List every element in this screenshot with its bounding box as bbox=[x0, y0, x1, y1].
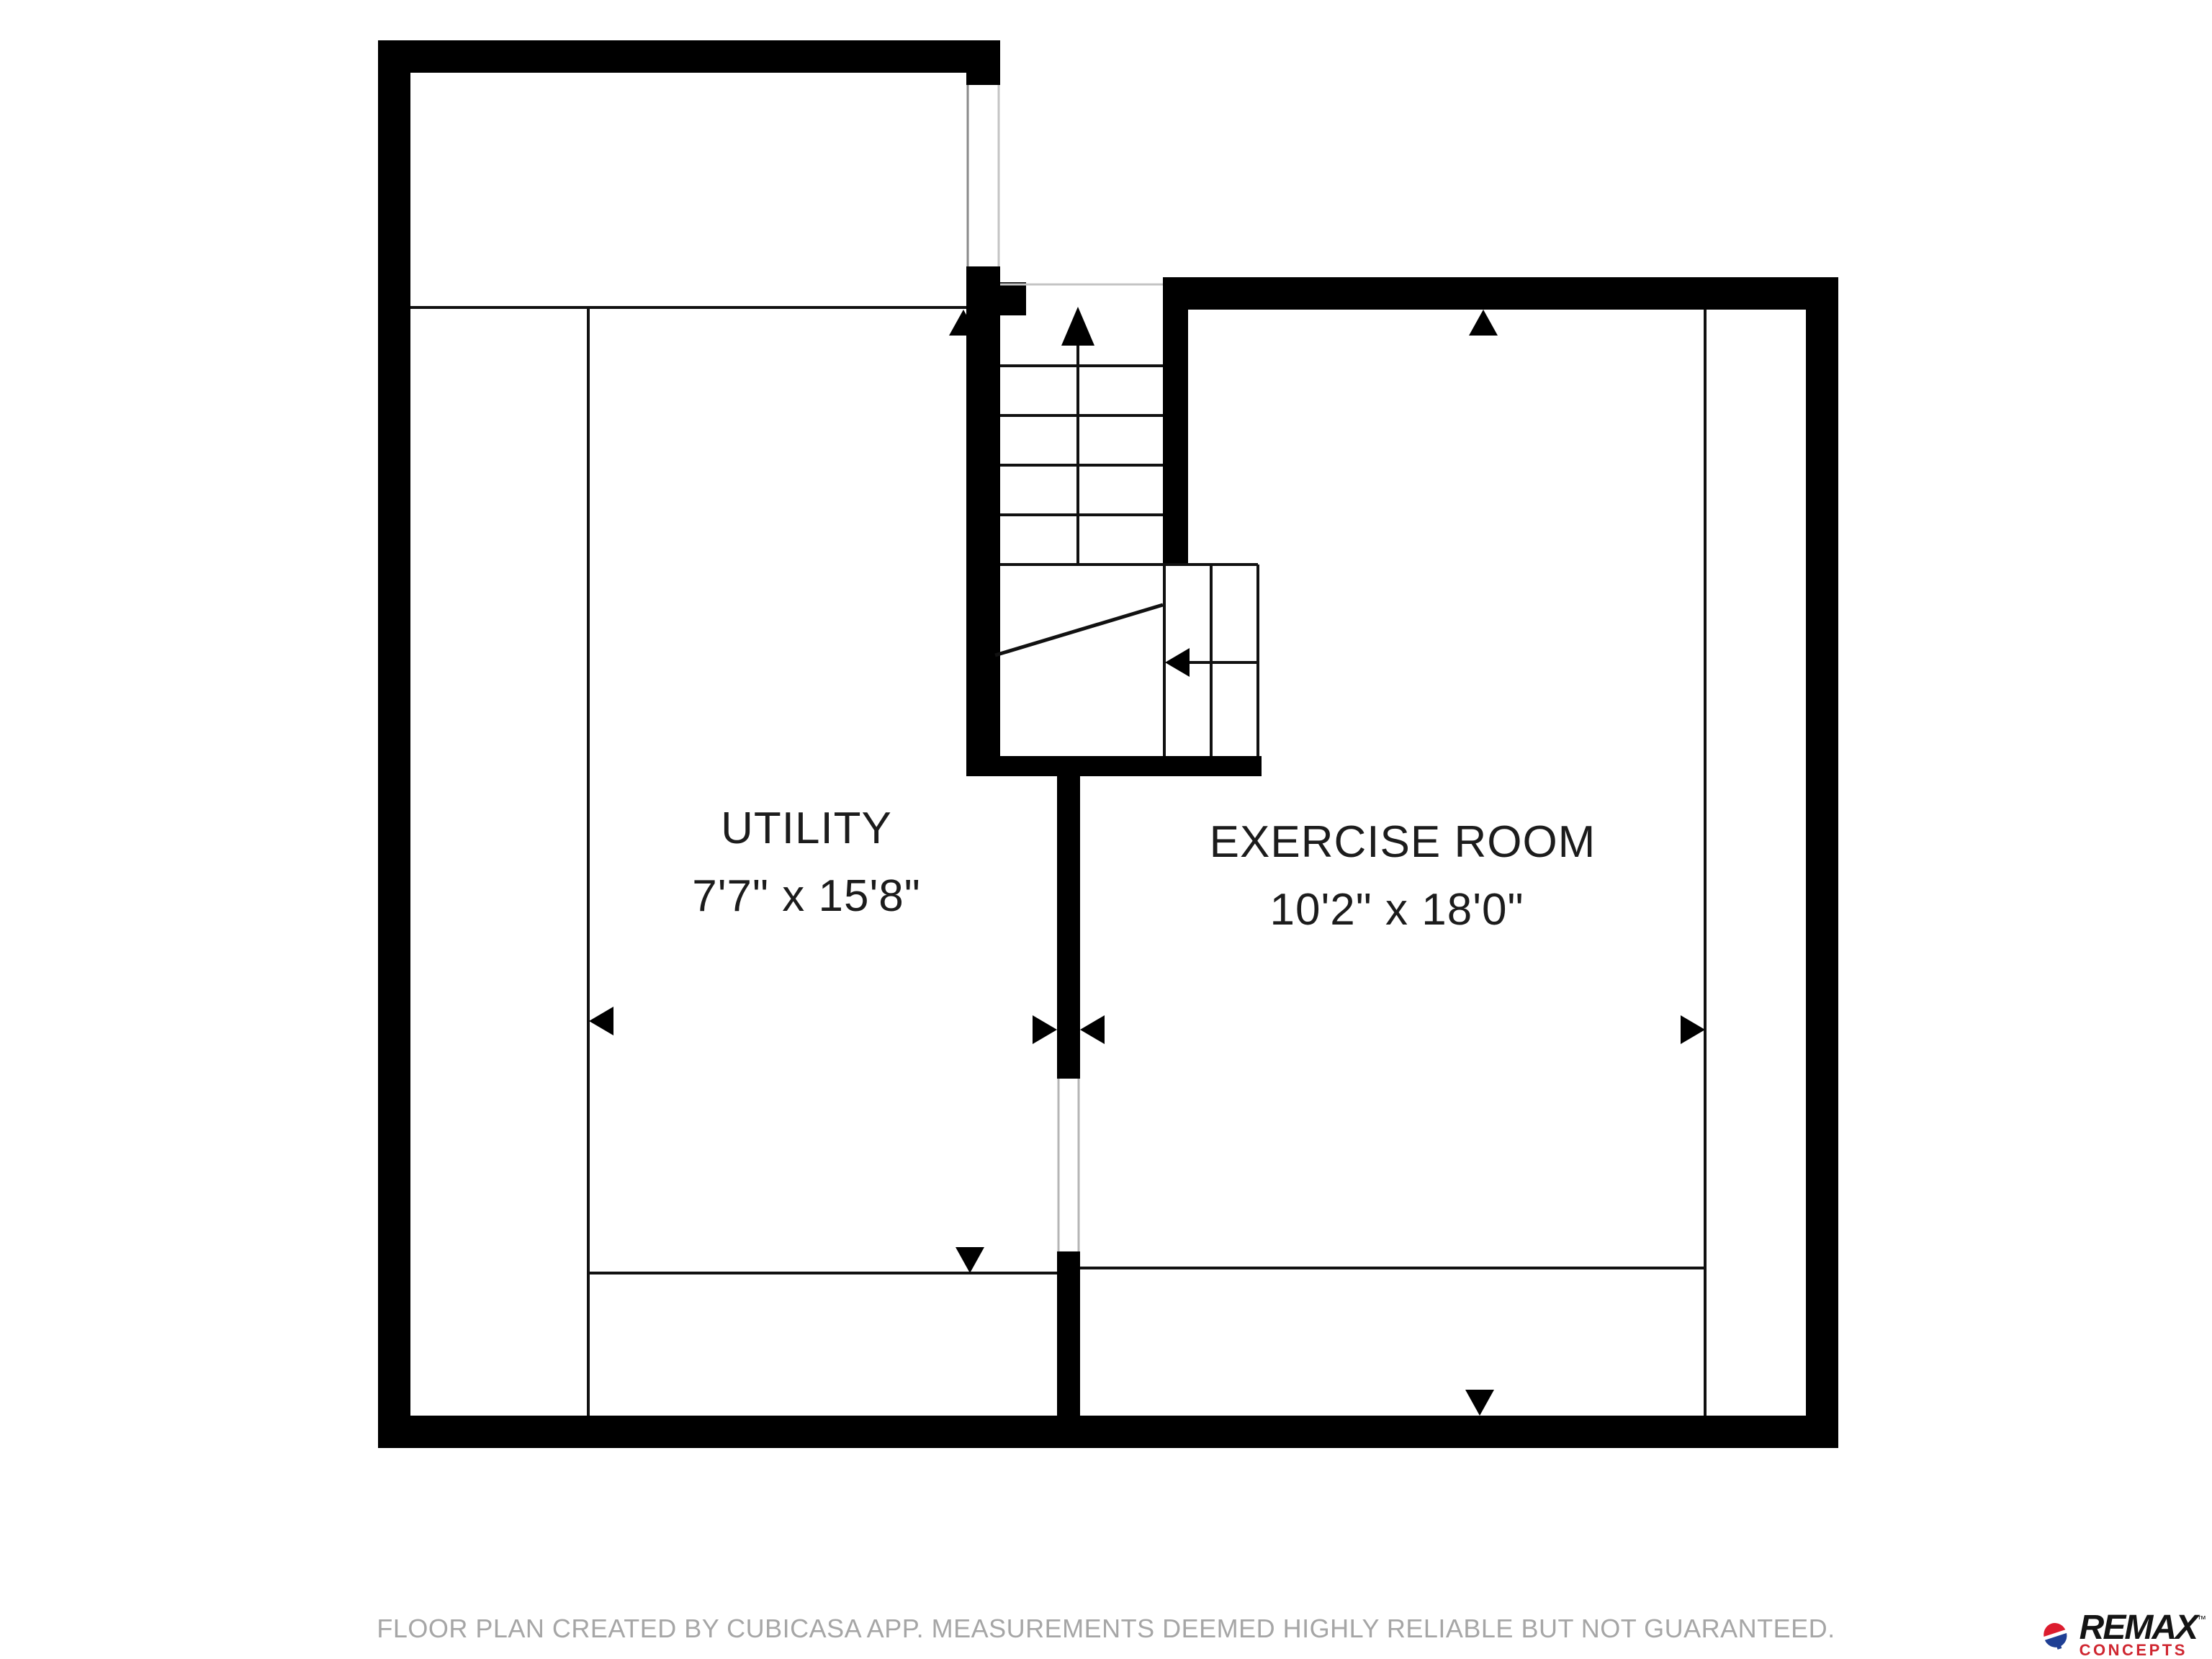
exterior-walls bbox=[378, 40, 1838, 1448]
logo-trademark: ™ bbox=[2197, 1614, 2206, 1624]
room-labels: UTILITY 7'7" x 15'8" EXERCISE ROOM 10'2"… bbox=[692, 804, 1596, 935]
wall-top bbox=[378, 40, 1000, 73]
window-opening bbox=[968, 85, 999, 266]
room-dims-exercise: 10'2" x 18'0" bbox=[1269, 885, 1524, 935]
remax-balloon-icon bbox=[2035, 1616, 2077, 1656]
utility-measure-right-arrow-icon bbox=[1033, 1015, 1057, 1044]
wall-exercise-top bbox=[1163, 277, 1838, 310]
utility-measure-down-arrow-icon bbox=[956, 1247, 984, 1273]
wall-bottom bbox=[378, 1416, 1838, 1448]
exercise-measure-right-arrow-icon bbox=[1681, 1015, 1705, 1044]
stair-winder-diagonal bbox=[995, 605, 1163, 655]
logo-brand-line: REMAX ™ bbox=[2080, 1614, 2206, 1642]
wall-right bbox=[1806, 277, 1838, 1448]
left-arrow-icon bbox=[1165, 648, 1190, 677]
interior-walls bbox=[966, 40, 1262, 1448]
room-name-exercise: EXERCISE ROOM bbox=[1210, 817, 1596, 867]
exercise-measure-down-arrow-icon bbox=[1465, 1390, 1494, 1416]
logo-subbrand-text: CONCEPTS bbox=[2080, 1643, 2188, 1658]
wall-left bbox=[378, 40, 410, 1448]
floor-plan: UTILITY 7'7" x 15'8" EXERCISE ROOM 10'2"… bbox=[0, 0, 2212, 1659]
exercise-measure-up-arrow-icon bbox=[1469, 310, 1498, 336]
wall-stair-corner-tab bbox=[1000, 282, 1026, 315]
wall-central-upper bbox=[1057, 756, 1080, 1079]
logo-wordmarks: REMAX ™ CONCEPTS bbox=[2080, 1614, 2206, 1658]
stair-up-arrow bbox=[1061, 307, 1094, 366]
wall-window-top-segment bbox=[966, 40, 1000, 85]
door-opening-central-wall bbox=[1058, 1079, 1079, 1251]
wall-stair-bottom bbox=[966, 756, 1262, 776]
staircase bbox=[995, 307, 1258, 756]
room-name-utility: UTILITY bbox=[721, 804, 892, 853]
utility-measure-left-arrow-icon bbox=[589, 1007, 613, 1035]
room-dims-utility: 7'7" x 15'8" bbox=[692, 871, 921, 921]
logo-brand-text: REMAX bbox=[2080, 1614, 2197, 1642]
stair-treads bbox=[1000, 366, 1258, 565]
remax-concepts-logo: REMAX ™ CONCEPTS bbox=[2035, 1614, 2206, 1658]
exercise-measure-left-arrow-icon bbox=[1080, 1015, 1105, 1044]
wall-central-lower bbox=[1057, 1251, 1080, 1448]
up-arrow-icon bbox=[1061, 307, 1094, 346]
wall-stair-right bbox=[1163, 277, 1188, 565]
wall-stair-left bbox=[966, 266, 1000, 776]
disclaimer-text: FLOOR PLAN CREATED BY CUBICASA APP. MEAS… bbox=[377, 1614, 1835, 1643]
